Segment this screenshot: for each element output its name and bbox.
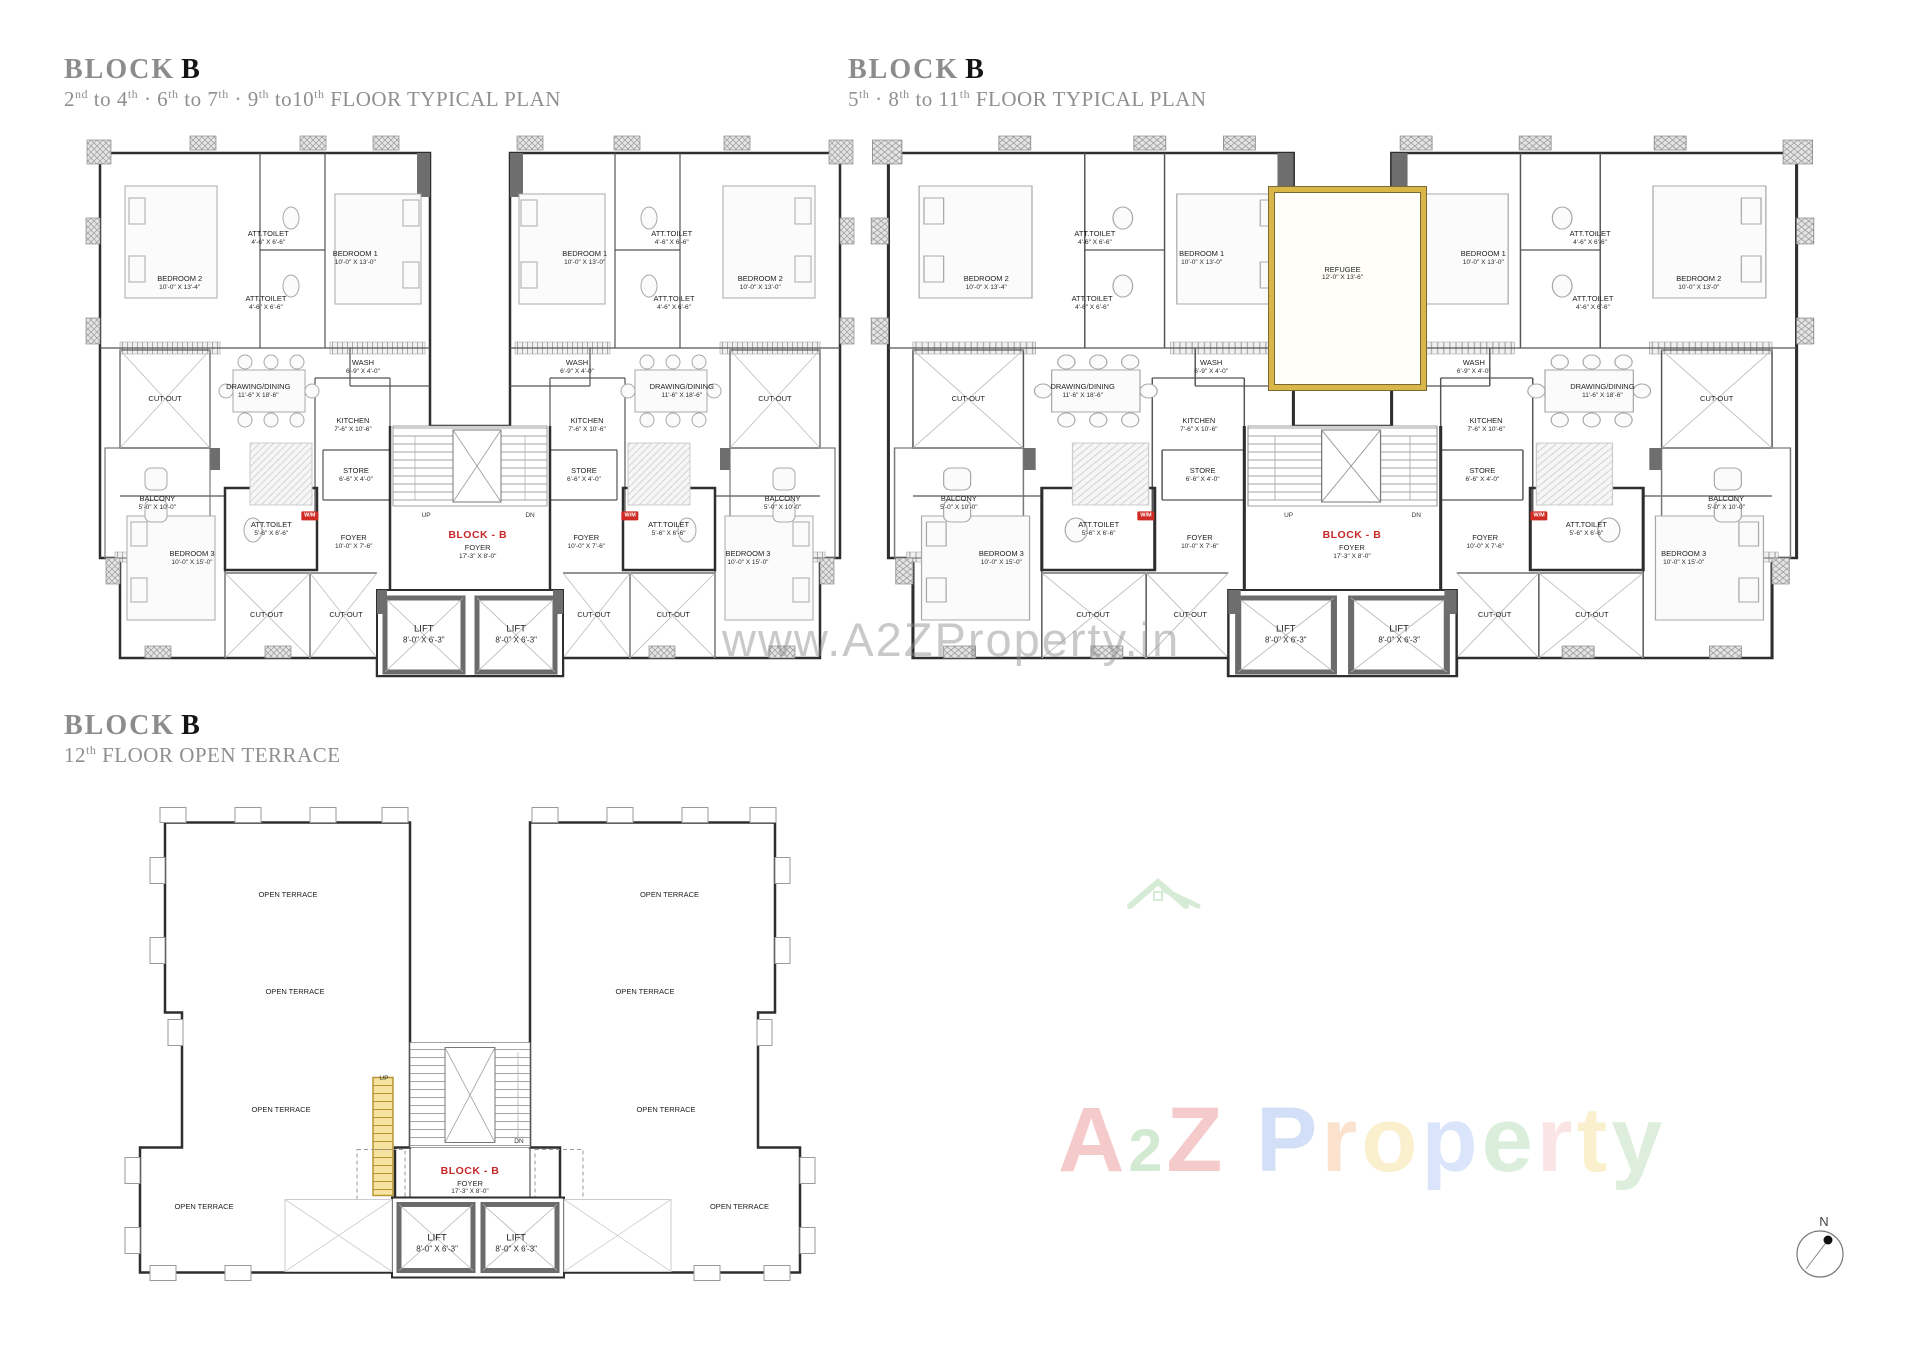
bedroom3-right-label: BEDROOM 310'-0" X 15'-0" [725,549,770,567]
dn-label-label: DN [525,512,534,520]
title-plan-a: BLOCKB 2nd to 4th · 6th to 7th · 9th to1… [64,54,561,112]
title-block-word: BLOCK [64,54,175,85]
logo-letter: e [1482,1088,1537,1193]
open-terrace-lower-left-label: OPEN TERRACE [251,1105,310,1115]
att-toilet-foyer-right-label: ATT.TOILET5'-6" X 6'-6" [648,520,689,538]
title-plan-b-subtitle: 5th · 8th to 11th FLOOR TYPICAL PLAN [848,87,1207,112]
north-label: N [1819,1214,1828,1229]
plan-a-labels: BEDROOM 210'-0" X 13'-4"ATT.TOILET4'-6" … [85,128,855,688]
att-toilet-foyer-left-label: ATT.TOILET5'-6" X 6'-6" [251,520,292,538]
logo-letter: o [1361,1088,1421,1193]
north-compass: N [1782,1212,1862,1292]
logo-letter: t [1577,1088,1612,1193]
att-toilet-lower-left-label: ATT.TOILET4'-6" X 6'-6" [245,294,286,312]
bedroom1-left-label: BEDROOM 110'-0" X 13'-0" [333,249,378,267]
logo-letter: Z [1166,1088,1226,1193]
lift-1-label: LIFT8'-0" X 6'-3" [403,623,445,646]
wash-left-label: WASH6'-9" X 4'-0" [346,358,380,376]
bedroom2-left-label: BEDROOM 210'-0" X 13'-4" [157,274,202,292]
cutout-bottom-left-1-label: CUT-OUT [250,610,283,620]
lift-2-label: LIFT8'-0" X 6'-3" [495,623,537,646]
watermark-logo: A2Z Property [1058,878,1666,1193]
drawing-dining-right-label: DRAWING/DINING11'-6" X 18'-6" [650,382,714,400]
bedroom2-right-label: BEDROOM 210'-0" X 13'-0" [738,274,783,292]
floor-plan-typical-a: BEDROOM 210'-0" X 13'-4"ATT.TOILET4'-6" … [85,128,855,688]
floor-plan-terrace: OPEN TERRACEOPEN TERRACEOPEN TERRACEOPEN… [120,795,820,1320]
drawing-dining-left-label: DRAWING/DINING11'-6" X 18'-6" [226,382,290,400]
title-plan-terrace-subtitle: 12th FLOOR OPEN TERRACE [64,743,341,768]
bedroom3-left-label: BEDROOM 310'-0" X 15'-0" [170,549,215,567]
open-terrace-bottom-left-label: OPEN TERRACE [174,1202,233,1212]
open-terrace-bottom-right-label: OPEN TERRACE [710,1202,769,1212]
cutout-upper-left-label: CUT-OUT [148,394,181,404]
att-toilet-upper-right-label: ATT.TOILET4'-6" X 6'-6" [651,229,692,247]
lift-1-label: LIFT8'-0" X 6'-3" [416,1233,458,1256]
cutout-bottom-left-2-label: CUT-OUT [329,610,362,620]
kitchen-left-label: KITCHEN7'-6" X 10'-6" [334,416,371,434]
att-toilet-lower-right-label: ATT.TOILET4'-6" X 6'-6" [654,294,695,312]
block-b-foyer-label: BLOCK - BFOYER17'-3" X 8'-0" [441,1165,500,1197]
title-plan-b-main: BLOCKB [848,54,1207,86]
title-plan-terrace-main: BLOCKB [64,710,341,742]
dn-label-label: DN [514,1137,523,1145]
cutout-bottom-right-2-label: CUT-OUT [577,610,610,620]
up-label-label: UP [379,1074,388,1082]
open-terrace-top-left-label: OPEN TERRACE [258,890,317,900]
open-terrace-top-right-label: OPEN TERRACE [640,890,699,900]
logo-letter: y [1611,1088,1666,1193]
title-block-letter: B [181,54,202,85]
title-block-letter: B [965,54,986,85]
kitchen-right-label: KITCHEN7'-6" X 10'-6" [568,416,605,434]
store-right-label: STORE6'-6" X 4'-0" [567,466,601,484]
title-block-word: BLOCK [848,54,959,85]
floor-plan-typical-b: BEDROOM 210'-0" X 13'-4"ATT.TOILET4'-6" … [870,128,1815,688]
wash-right-label: WASH6'-9" X 4'-0" [560,358,594,376]
wm-tag-left-label: W/M [301,512,318,521]
open-terrace-lower-right-label: OPEN TERRACE [636,1105,695,1115]
logo-letter [1226,1088,1256,1193]
title-plan-terrace: BLOCKB 12th FLOOR OPEN TERRACE [64,710,341,768]
logo-letter: r [1321,1088,1361,1193]
store-left-label: STORE6'-6" X 4'-0" [339,466,373,484]
logo-letter: 2 [1128,1115,1166,1185]
open-terrace-mid-right-label: OPEN TERRACE [615,987,674,997]
foyer-left-label: FOYER10'-0" X 7'-6" [335,533,372,551]
north-arrow-icon: N [1782,1212,1862,1292]
watermark-url: www.A2ZProperty.in [722,612,1180,667]
lift-2-label: LIFT8'-0" X 6'-3" [495,1233,537,1256]
title-plan-a-subtitle: 2nd to 4th · 6th to 7th · 9th to10th FLO… [64,87,561,112]
balcony-left-label: BALCONY5'-0" X 10'-0" [139,494,176,512]
logo-letter: A [1058,1088,1128,1193]
plan-b-refugee-label: REFUGEE12'-0" X 13'-6" [870,128,1815,688]
title-block-letter: B [181,710,202,741]
plan-c-labels: OPEN TERRACEOPEN TERRACEOPEN TERRACEOPEN… [120,795,820,1320]
page: { "titles": [ { "block": "BLOCK", "b": "… [0,0,1920,1358]
title-plan-b: BLOCKB 5th · 8th to 11th FLOOR TYPICAL P… [848,54,1207,112]
wm-tag-right-label: W/M [622,512,639,521]
title-plan-a-main: BLOCKB [64,54,561,86]
refugee-room-label: REFUGEE12'-0" X 13'-6" [1322,265,1363,283]
title-block-word: BLOCK [64,710,175,741]
balcony-right-label: BALCONY5'-0" X 10'-0" [764,494,801,512]
bedroom1-right-label: BEDROOM 110'-0" X 13'-0" [562,249,607,267]
open-terrace-mid-left-label: OPEN TERRACE [265,987,324,997]
att-toilet-upper-left-label: ATT.TOILET4'-6" X 6'-6" [248,229,289,247]
logo-letter: p [1421,1088,1481,1193]
foyer-right-label: FOYER10'-0" X 7'-6" [568,533,605,551]
up-label-label: UP [422,512,431,520]
roof-icon [1124,872,1210,912]
block-b-foyer-label: BLOCK - BFOYER17'-3" X 8'-0" [448,529,507,561]
logo-letter: P [1256,1088,1321,1193]
cutout-upper-right-label: CUT-OUT [758,394,791,404]
cutout-bottom-right-1-label: CUT-OUT [657,610,690,620]
logo-letter: r [1537,1088,1577,1193]
